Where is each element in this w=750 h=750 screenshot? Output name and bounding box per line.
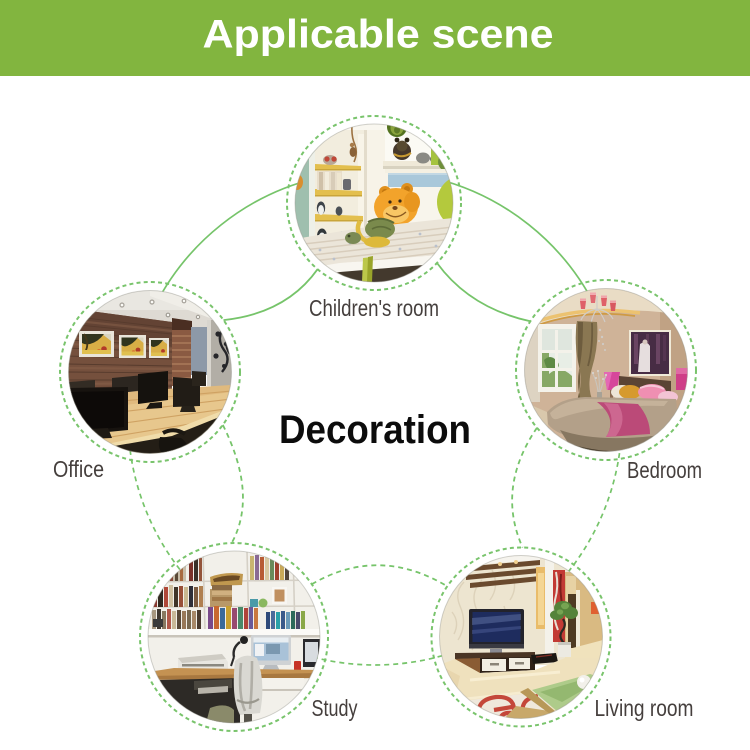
svg-text:Office: Office [53,456,104,482]
svg-text:Applicable scene: Applicable scene [203,13,554,57]
svg-text:Decoration: Decoration [279,408,471,452]
svg-text:Children's room: Children's room [309,295,439,321]
svg-text:Bedroom: Bedroom [627,457,702,483]
svg-text:Living room: Living room [595,695,694,721]
svg-text:Study: Study [312,695,358,721]
